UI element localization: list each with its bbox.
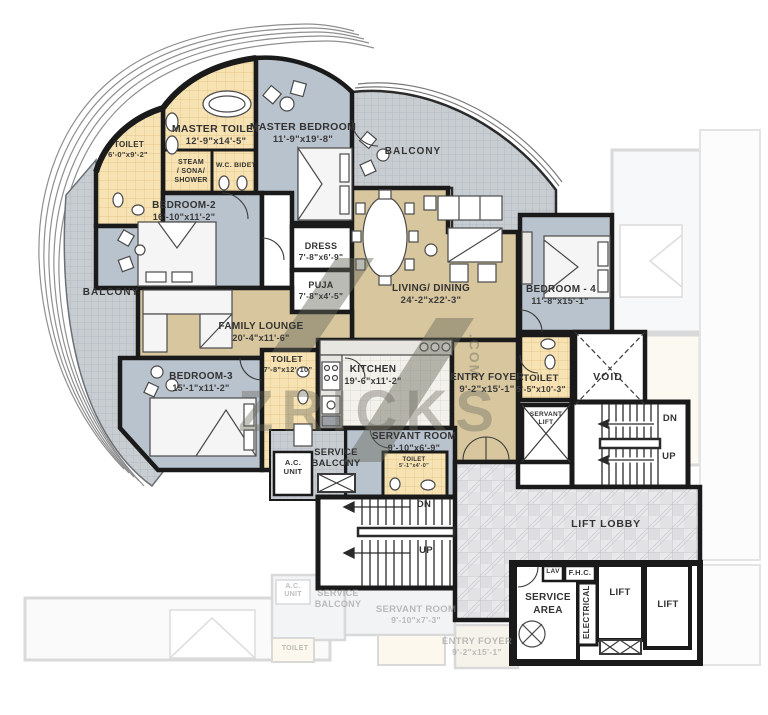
steam-label-3: SHOWER bbox=[121, 177, 261, 184]
service-area-label-2: AREA bbox=[478, 606, 618, 617]
room-dims-family-lounge: 20'-4"x11'-6" bbox=[191, 334, 331, 343]
fhc-label: F.H.C. bbox=[510, 569, 650, 577]
servant-lift-label-2: LIFT bbox=[476, 420, 616, 427]
lift2-label: LIFT bbox=[598, 600, 738, 610]
room-dims-dress: 7'-8"x6'-9" bbox=[251, 253, 391, 262]
ac-unit-label-2: UNIT bbox=[223, 468, 363, 476]
ghost-entry-foyer-dims: 9'-2"x15'-1" bbox=[407, 648, 547, 657]
void-label: VOID bbox=[538, 372, 678, 383]
ghost-service-balcony-label-1: SERVICE bbox=[268, 589, 408, 598]
room-label-bedroom2: BEDROOM-2 bbox=[114, 201, 254, 212]
room-label-toilet3: TOILET bbox=[217, 355, 357, 364]
ac-unit-label-1: A.C. bbox=[223, 459, 363, 467]
wc-bidet-label: W.C. BIDET bbox=[166, 162, 306, 169]
room-label-family-lounge: FAMILY LOUNGE bbox=[191, 322, 331, 333]
room-label-bedroom4: BEDROOM - 4 bbox=[491, 285, 631, 296]
room-dims-toilet4: 5'-5"x10'-3" bbox=[471, 385, 611, 394]
room-label-servant-room: SERVANT ROOM bbox=[344, 432, 484, 443]
electrical-label: ELECTRICAL bbox=[583, 542, 591, 682]
room-label-master-bedroom: MASTER BEDROOM bbox=[233, 122, 373, 133]
room-dims-bedroom3: 15'-1"x11'-2" bbox=[131, 384, 271, 393]
servant-lift-label-1: SERVANT bbox=[476, 412, 616, 419]
room-dims-living-dining: 24'-2"x22'-3" bbox=[361, 296, 501, 306]
floor-plan: ZRICKS .COM TOILET 6'-0"x9'-2" MASTER TO… bbox=[0, 0, 768, 715]
room-dims-bedroom2: 16'-10"x11'-2" bbox=[114, 213, 254, 222]
ghost-toilet-label: TOILET bbox=[225, 645, 365, 652]
ghost-servant-room-dims: 9'-10"x7'-3" bbox=[346, 616, 486, 625]
balcony-top-label: BALCONY bbox=[343, 147, 483, 158]
room-label-living-dining: LIVING/ DINING bbox=[361, 284, 501, 295]
ghost-servant-room-label: SERVANT ROOM bbox=[346, 605, 486, 615]
ghost-entry-foyer-label: ENTRY FOYER bbox=[407, 637, 547, 647]
lift-lobby-label: LIFT LOBBY bbox=[536, 519, 676, 530]
stairs-right-dn-label: DN bbox=[600, 414, 740, 424]
room-dims-toilet-topleft: 6'-0"x9'-2" bbox=[58, 151, 198, 159]
stairs-right-up-label: UP bbox=[599, 452, 739, 462]
stairs-mid-up-label: UP bbox=[356, 546, 496, 556]
room-label-dress: DRESS bbox=[251, 242, 391, 251]
room-dims-master-bedroom: 11'-9"x19'-8" bbox=[233, 135, 373, 145]
service-balcony-label-1: SERVICE bbox=[266, 448, 406, 458]
stairs-mid-dn-label: DN bbox=[354, 500, 494, 510]
room-dims-bedroom4: 11'-8"x15'-1" bbox=[490, 297, 630, 306]
balcony-left-label: BALCONY bbox=[41, 288, 181, 299]
lift1-label: LIFT bbox=[550, 588, 690, 598]
